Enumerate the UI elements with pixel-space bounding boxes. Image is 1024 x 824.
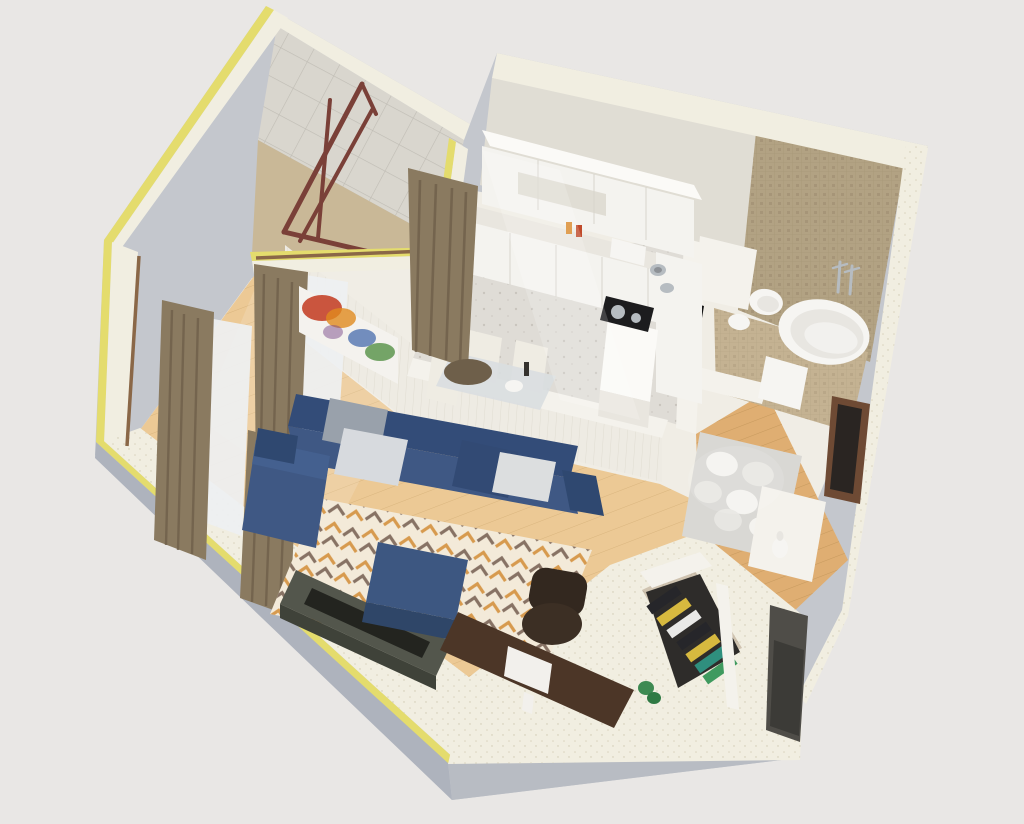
office-chair-seat bbox=[522, 603, 582, 645]
sink-bowl-2 bbox=[660, 283, 674, 293]
floorplan-svg bbox=[0, 0, 1024, 824]
bottle bbox=[524, 362, 529, 376]
painting-blue-blob bbox=[348, 329, 376, 347]
plant-leaf-2 bbox=[647, 692, 661, 704]
monitor-stand bbox=[522, 692, 534, 714]
tall-cabinet bbox=[656, 252, 702, 404]
sink-drain bbox=[654, 267, 662, 273]
plate-2 bbox=[505, 380, 523, 392]
pot-small bbox=[631, 313, 641, 323]
storage-niche-shadow bbox=[770, 640, 804, 736]
painting-orange-blob bbox=[326, 308, 356, 328]
vase-neck bbox=[777, 531, 784, 541]
hall-light-patch bbox=[688, 446, 784, 514]
curtain-kitchen-pool bbox=[444, 359, 492, 385]
painting-green-blob bbox=[365, 343, 395, 361]
pot bbox=[611, 305, 625, 319]
painting-purple-blob bbox=[323, 325, 343, 339]
floorplan-render bbox=[0, 0, 1024, 824]
